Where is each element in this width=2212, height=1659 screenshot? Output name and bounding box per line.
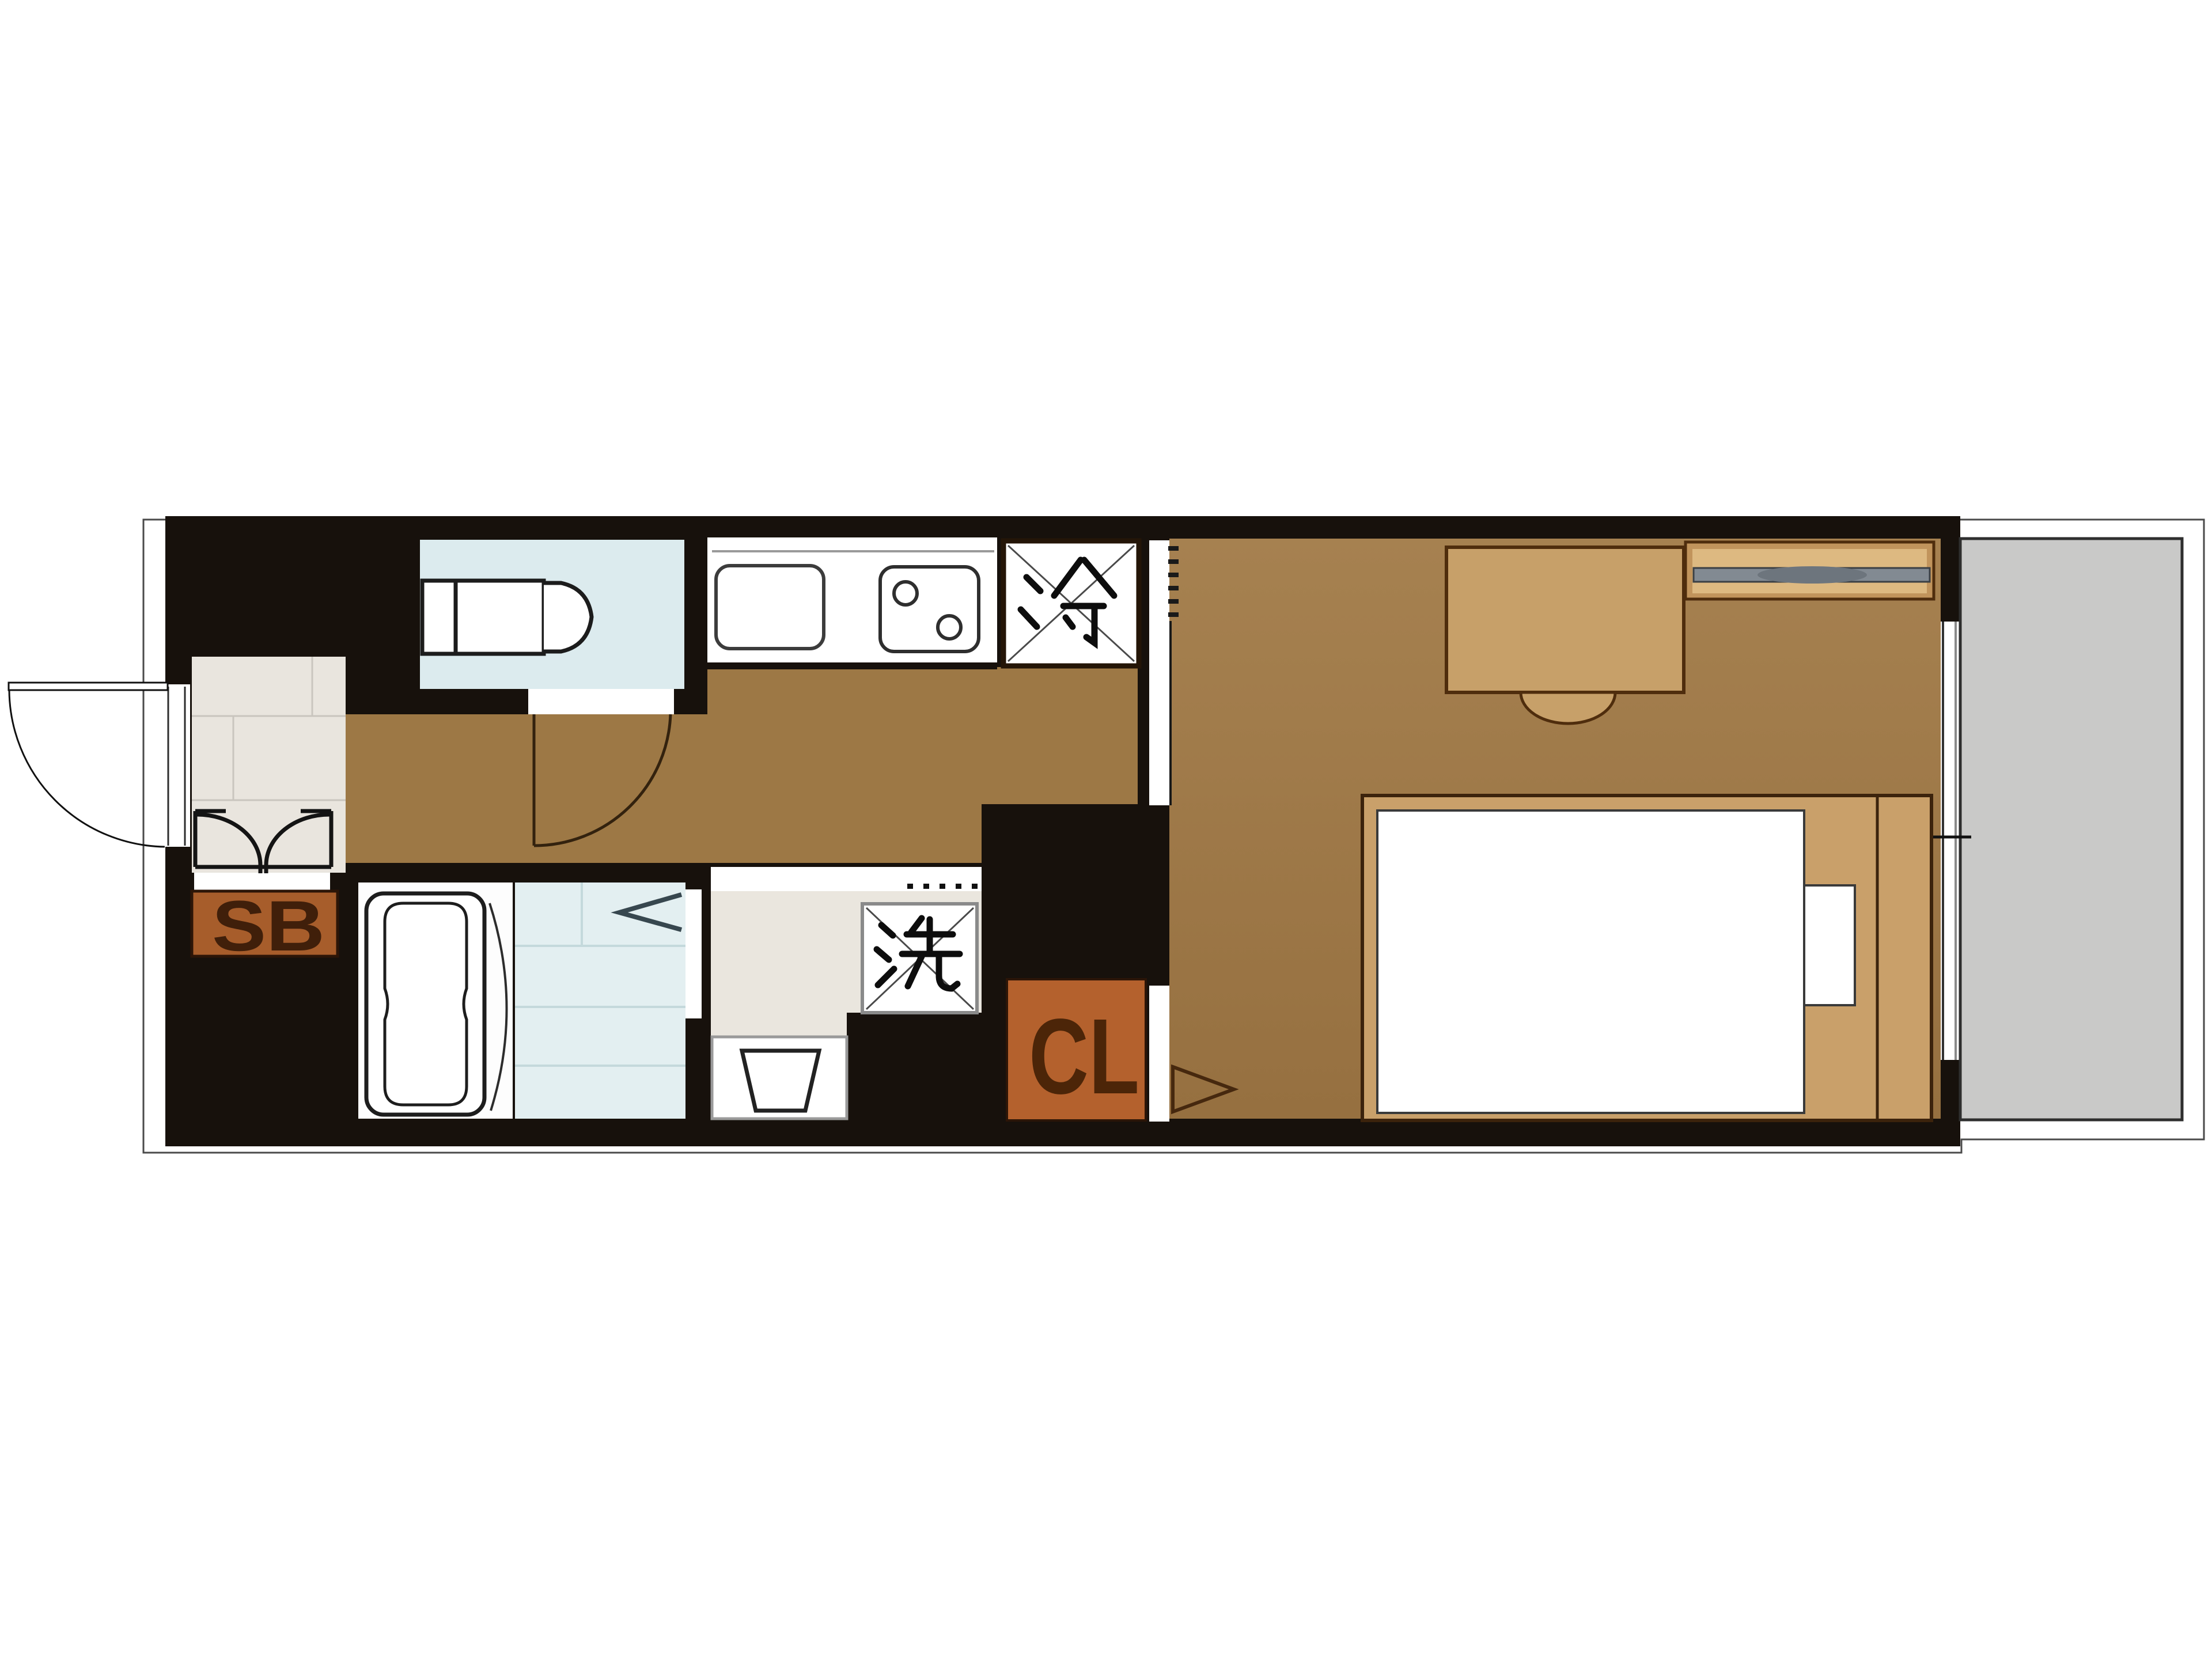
- svg-text:CL: CL: [1029, 997, 1139, 1116]
- svg-text:SB: SB: [212, 887, 325, 966]
